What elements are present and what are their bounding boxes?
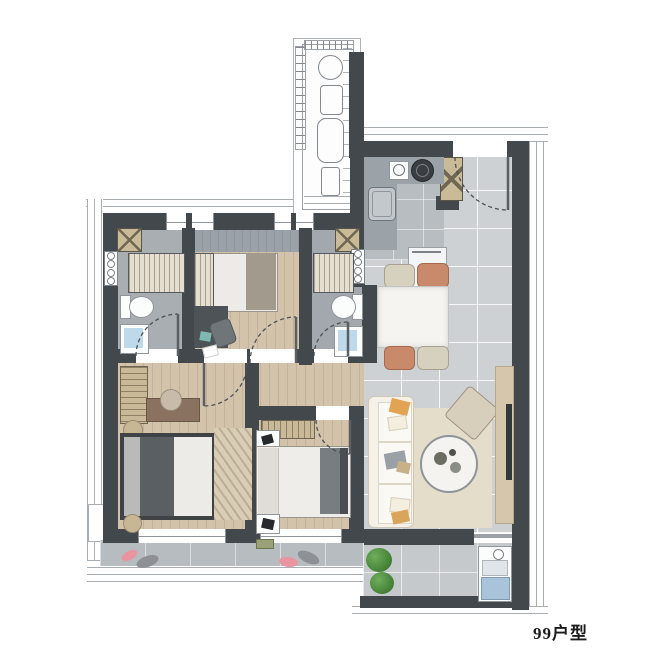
sofa-pillow-tan-mid — [396, 461, 411, 474]
bed-blanket-bedroom-2 — [246, 253, 276, 310]
door-opening-bedroom-3 — [316, 406, 350, 420]
water-heater — [318, 55, 343, 80]
basin-water-bathroom-2 — [338, 330, 357, 351]
shower-bathroom-1 — [128, 253, 185, 293]
bed-master-blanket — [140, 437, 174, 516]
dining-chair-1 — [384, 264, 415, 288]
fridge-handle — [412, 251, 441, 253]
toilet-bowl-bathroom-2 — [331, 295, 356, 319]
plant-1 — [366, 548, 392, 572]
wok-burner-ring — [416, 164, 429, 177]
window-band-entry-top — [352, 127, 548, 142]
threshold-lines — [304, 196, 354, 208]
coffee-table-plant — [434, 452, 447, 465]
toilet-bowl-bathroom-1 — [129, 296, 154, 318]
dining-table — [377, 286, 449, 348]
shower-bathroom-2 — [313, 253, 354, 293]
washing-machine — [481, 577, 510, 600]
door-opening-bedroom-2 — [250, 349, 296, 363]
floor-plan: 99户型 — [0, 0, 660, 660]
bed-throw-bedroom-2 — [194, 253, 214, 312]
floor-vent-grille — [256, 539, 274, 549]
tv-screen — [506, 404, 512, 480]
bed-master-duvet — [174, 437, 212, 516]
wardrobe-master — [120, 366, 148, 424]
nightstand-master-2 — [123, 514, 142, 533]
desk-note-teal — [199, 331, 211, 342]
louver-ticks-left — [295, 46, 306, 150]
bed-master-pillows — [124, 437, 140, 516]
ac-unit-3 — [321, 167, 340, 196]
window-band-top-left — [86, 199, 302, 213]
closet-band-bedroom-2 — [194, 228, 302, 252]
wall-living-bottom — [364, 529, 474, 545]
cooktop-burner-ring — [393, 164, 405, 176]
coffee-table-bowl — [450, 462, 461, 473]
wall-living-left — [349, 406, 364, 533]
rug-master — [214, 428, 252, 520]
entry-door-opening — [453, 141, 507, 157]
duct-shaft-bathroom-1 — [117, 228, 142, 252]
coffee-table-cup — [449, 449, 456, 456]
ac-unit-1 — [320, 85, 343, 115]
laundry-faucet — [493, 549, 504, 560]
sofa-pillow-white-top — [387, 415, 408, 432]
coffee-table — [420, 435, 478, 493]
plan-title: 99户型 — [533, 619, 623, 644]
window-master-south — [138, 529, 226, 543]
dining-chair-4 — [417, 346, 449, 370]
dresser-mirror — [160, 389, 182, 411]
basin-water-bathroom-1 — [124, 328, 143, 348]
ac-unit-2 — [317, 118, 344, 163]
pipe-panel-bathroom-1 — [104, 251, 118, 286]
window-band-right — [529, 130, 547, 618]
dining-chair-3 — [384, 346, 415, 370]
bed-bedroom3-bench — [340, 448, 348, 514]
laundry-sink — [482, 560, 508, 576]
wall-right — [512, 141, 529, 610]
sill-balcony-door — [474, 534, 512, 538]
bed-bedroom3-pillows — [258, 448, 279, 514]
dining-chair-2 — [417, 263, 449, 288]
kitchen-sink-basin — [372, 191, 392, 217]
wall-bedroom2-right — [299, 228, 312, 365]
plant-2 — [370, 572, 394, 594]
nightstand-bedroom3-2 — [256, 514, 280, 534]
